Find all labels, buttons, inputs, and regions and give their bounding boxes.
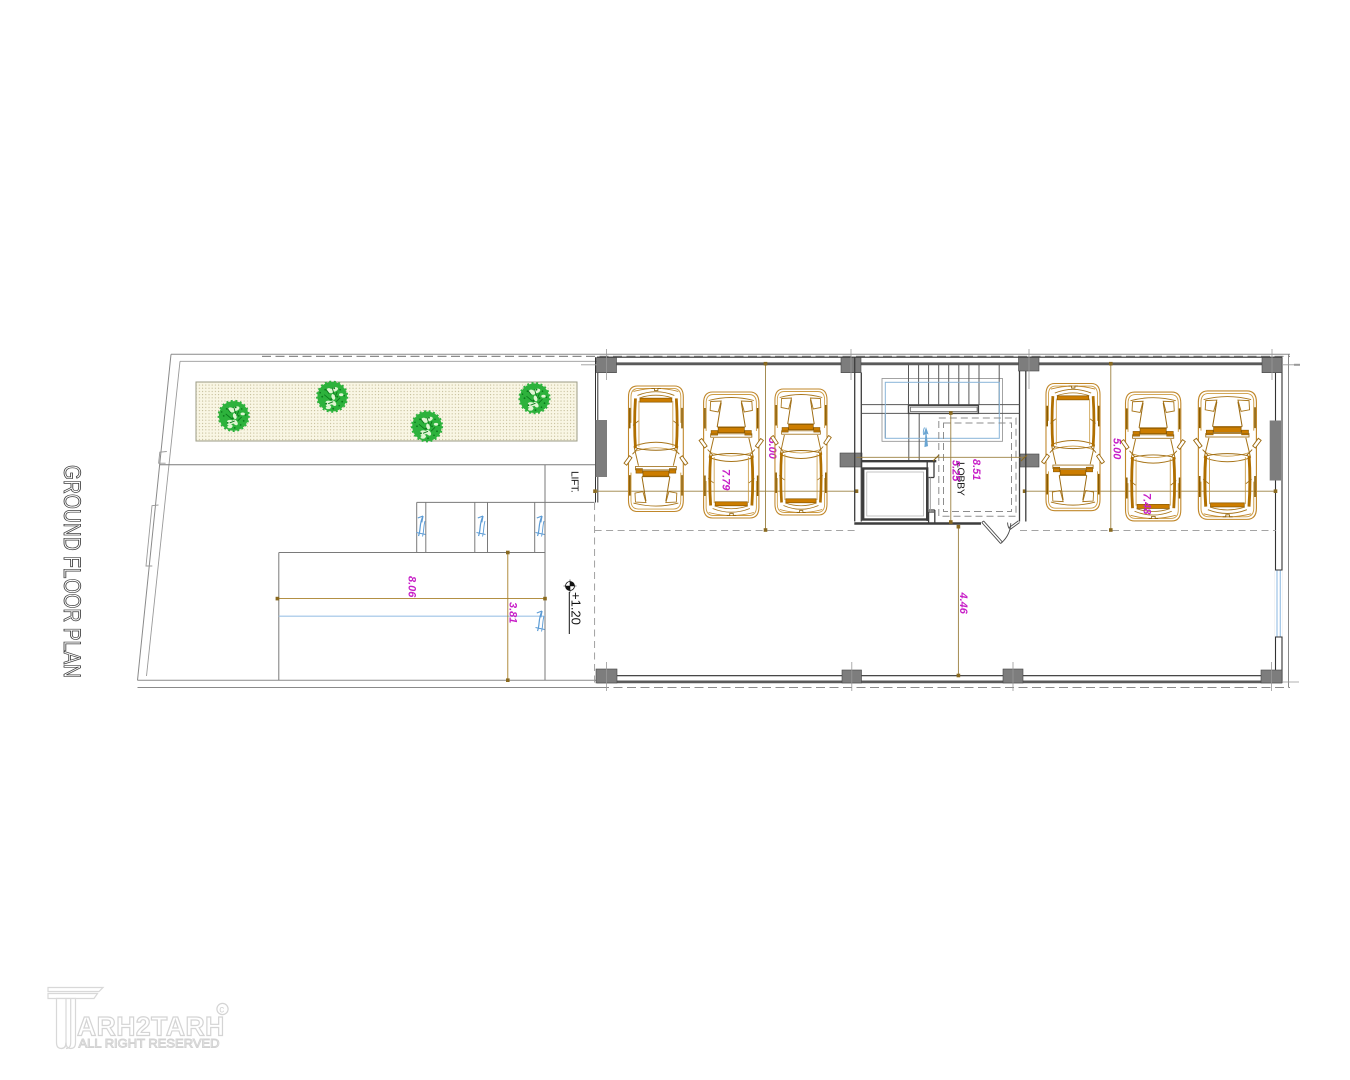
svg-text:8.06: 8.06 xyxy=(406,576,418,598)
svg-text:3.81: 3.81 xyxy=(507,602,519,623)
svg-text:7.79: 7.79 xyxy=(720,469,732,491)
svg-text:7.48: 7.48 xyxy=(1141,493,1153,515)
svg-text:+1.20: +1.20 xyxy=(569,592,584,625)
svg-text:4.46: 4.46 xyxy=(957,592,969,615)
svg-text:LIFT.: LIFT. xyxy=(569,471,581,492)
svg-text:ALL RIGHT RESERVED: ALL RIGHT RESERVED xyxy=(79,1037,220,1051)
svg-text:GROUND FLOOR PLAN: GROUND FLOOR PLAN xyxy=(58,465,85,678)
svg-text:5.25: 5.25 xyxy=(950,460,962,482)
svg-text:8.51: 8.51 xyxy=(970,459,982,480)
svg-text:c: c xyxy=(219,1005,224,1016)
